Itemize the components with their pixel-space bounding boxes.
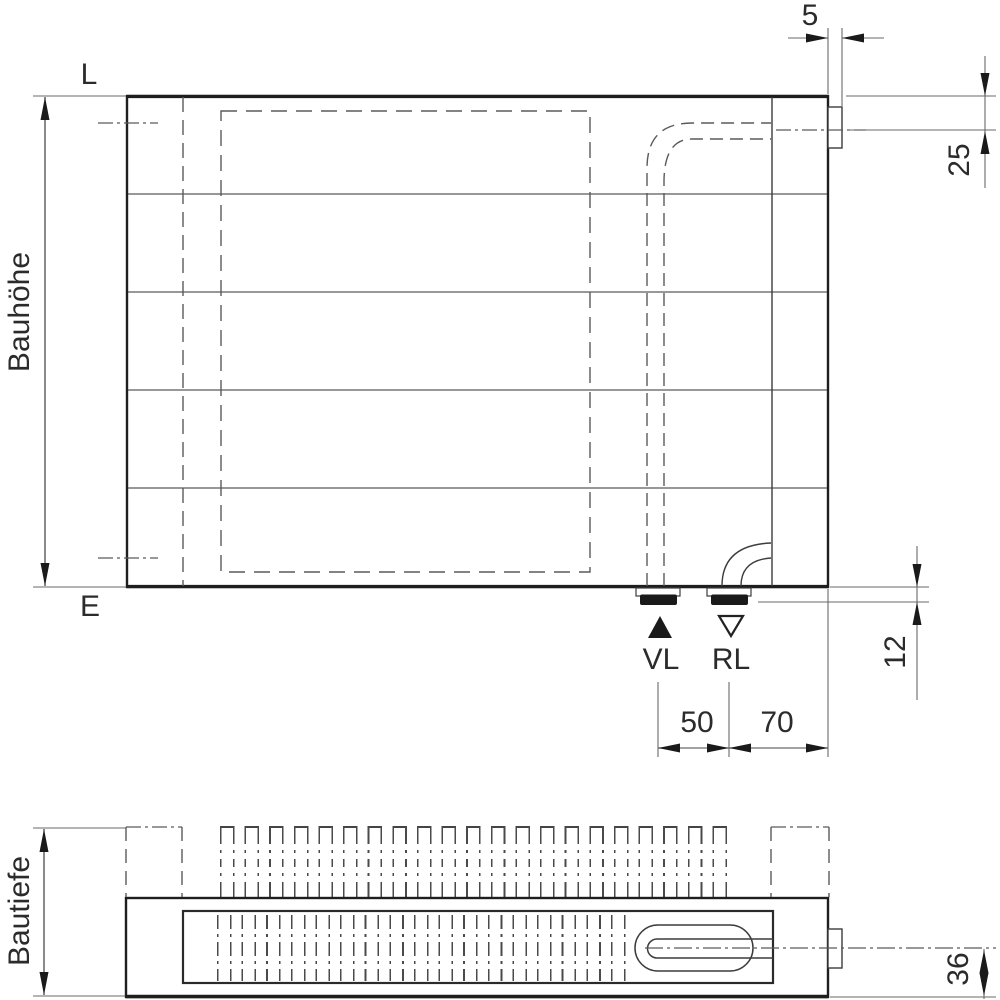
dim-text-36: 36 [944,952,974,985]
rl-elbow-outer [722,543,771,586]
technical-drawing-sheet: L E Bauhöhe Bautiefe 5 25 12 50 70 36 VL… [0,0,1000,1000]
dim-text-70: 70 [760,708,793,738]
arrow-down-icon [41,563,50,586]
dim-text-50: 50 [680,708,713,738]
dim-tab-5 [788,28,884,106]
dim-text-25: 25 [945,143,975,176]
dim-text-5: 5 [802,1,819,31]
arrow-right-icon [707,744,729,753]
side-connection-tab [828,107,842,148]
label-bautiefe: Bautiefe [5,856,35,966]
dim-bauhoehe [33,96,126,587]
vl-stub [640,595,677,606]
arrow-left-icon [729,744,751,753]
arrow-down-icon [913,564,922,587]
rl-stub [711,595,748,606]
bottom-connection-stubs [636,588,751,638]
arrow-up-icon [41,97,50,120]
arrow-up-icon [913,602,922,625]
arrow-up-icon [40,829,49,852]
dim-bautiefe [33,828,126,996]
arrow-down-icon [981,73,990,96]
front-view-body [127,96,842,587]
arrow-up-icon [981,131,990,154]
rl-return-triangle-icon [719,616,743,636]
arrow-up-icon [980,950,989,973]
arrow-right-icon [806,744,828,753]
arrow-left-icon [842,34,864,43]
label-rl: RL [712,645,750,675]
front-view-pipes [647,123,771,586]
label-bauhoehe: Bauhöhe [5,252,35,372]
label-bottom-reference: E [80,592,100,622]
vl-pipe-inner [664,139,771,586]
arrow-down-icon [980,973,989,996]
arrow-right-icon [806,34,828,43]
dim-drop-12 [758,546,929,700]
vl-pipe-outer [647,123,771,586]
arrow-down-icon [40,972,49,995]
rl-elbow-inner [741,558,771,586]
front-view-centerlines [98,123,866,558]
plan-view-hidden-side-panels [126,827,829,897]
label-top-reference: L [81,60,98,90]
vl-flow-triangle-icon [648,616,672,638]
drawing-linework [0,0,1000,1000]
dim-text-12: 12 [881,635,911,668]
arrow-left-icon [658,744,680,753]
label-vl: VL [643,645,680,675]
